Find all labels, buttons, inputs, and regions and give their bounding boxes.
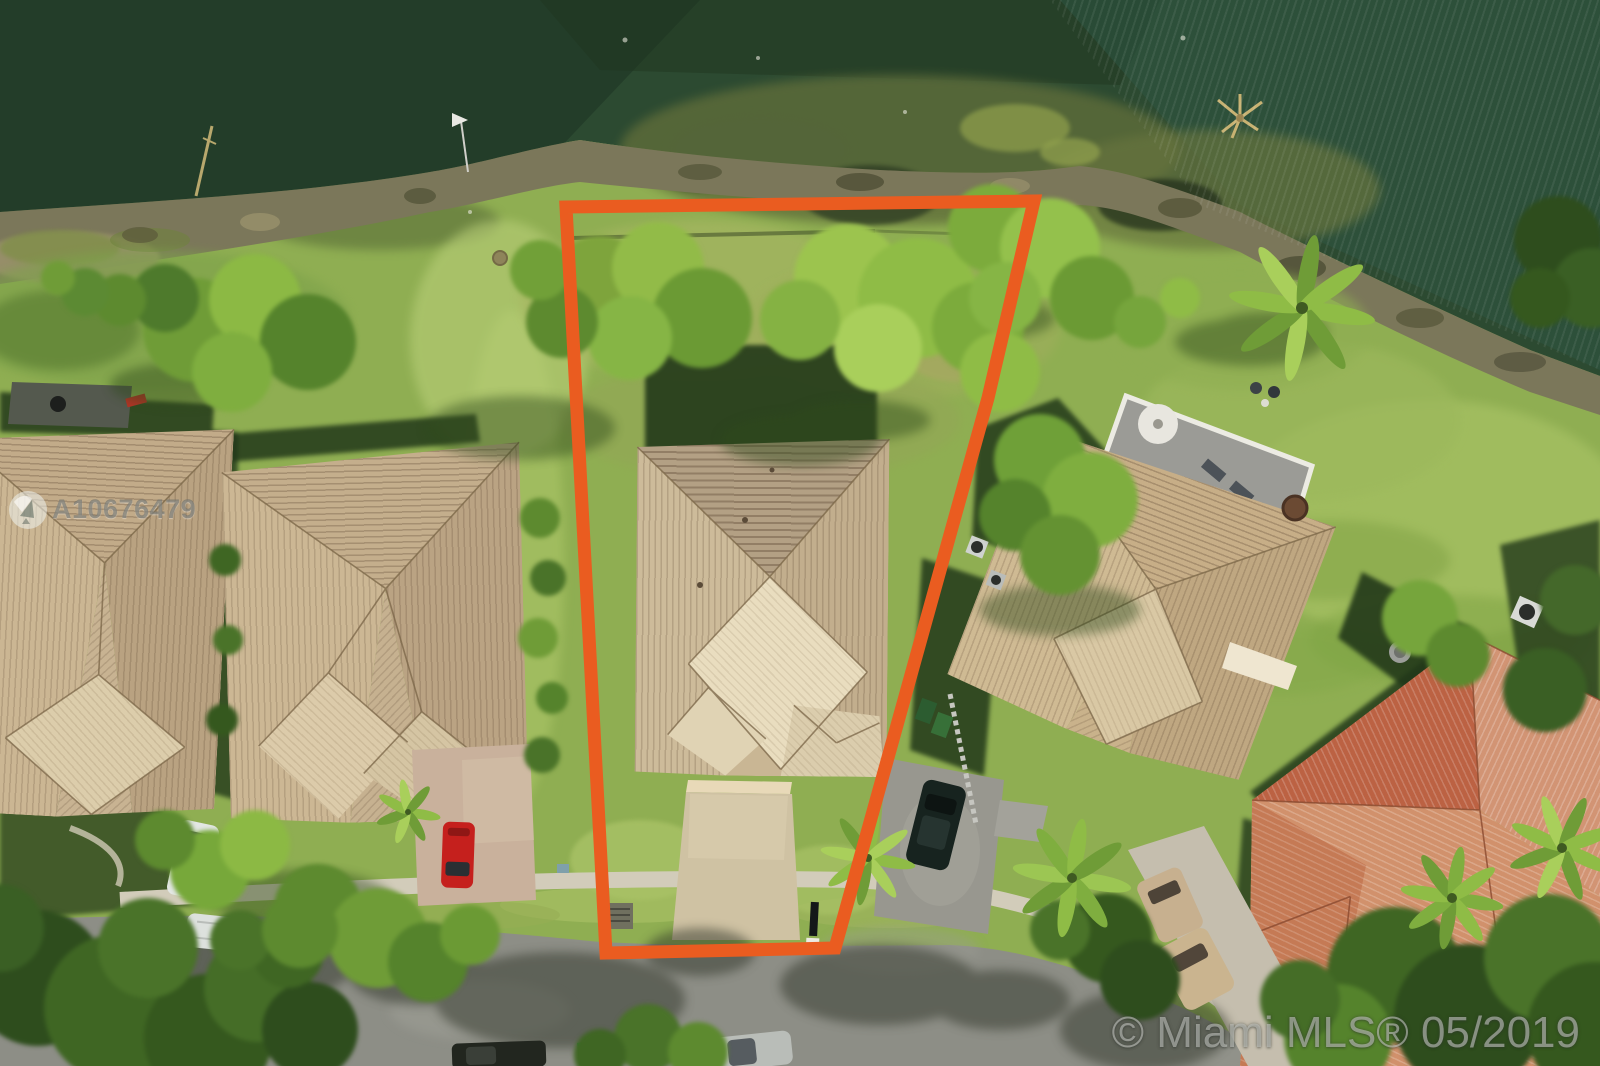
trash-bin [915,698,938,724]
palm-tree-jungle-2 [1508,794,1600,902]
yard-marker [557,864,569,873]
aerial-photo: A10676479 © Miami MLS® 05/2019 [0,0,1600,1066]
mls-copyright-watermark: © Miami MLS® 05/2019 [1112,1008,1580,1058]
tree-over-right-house [979,414,1138,595]
tree-cluster-left-shore [41,254,356,412]
mailbox-post [809,902,819,936]
tree-right-lawn [1382,565,1600,732]
mls-number-watermark: A10676479 [52,494,196,525]
hedge-column-left-of-lot [518,498,568,773]
subject-front-wall [686,780,792,794]
round-planter [1283,496,1307,520]
tree-top-right-corner [1510,196,1600,328]
roof-vent [770,468,775,473]
mls-logo [6,488,50,537]
roof-vent [697,582,703,588]
tree-cluster-right-shore [948,184,1200,348]
roof-vent [742,517,748,523]
sunlit-wall [1222,642,1297,690]
hedge-between-left-houses [206,544,243,736]
tree-cluster-lot-rear-left [510,222,752,380]
red-car [441,821,475,888]
trash-bin [931,712,954,738]
dark-car [452,1040,547,1066]
foreground-layer [0,0,1600,1066]
